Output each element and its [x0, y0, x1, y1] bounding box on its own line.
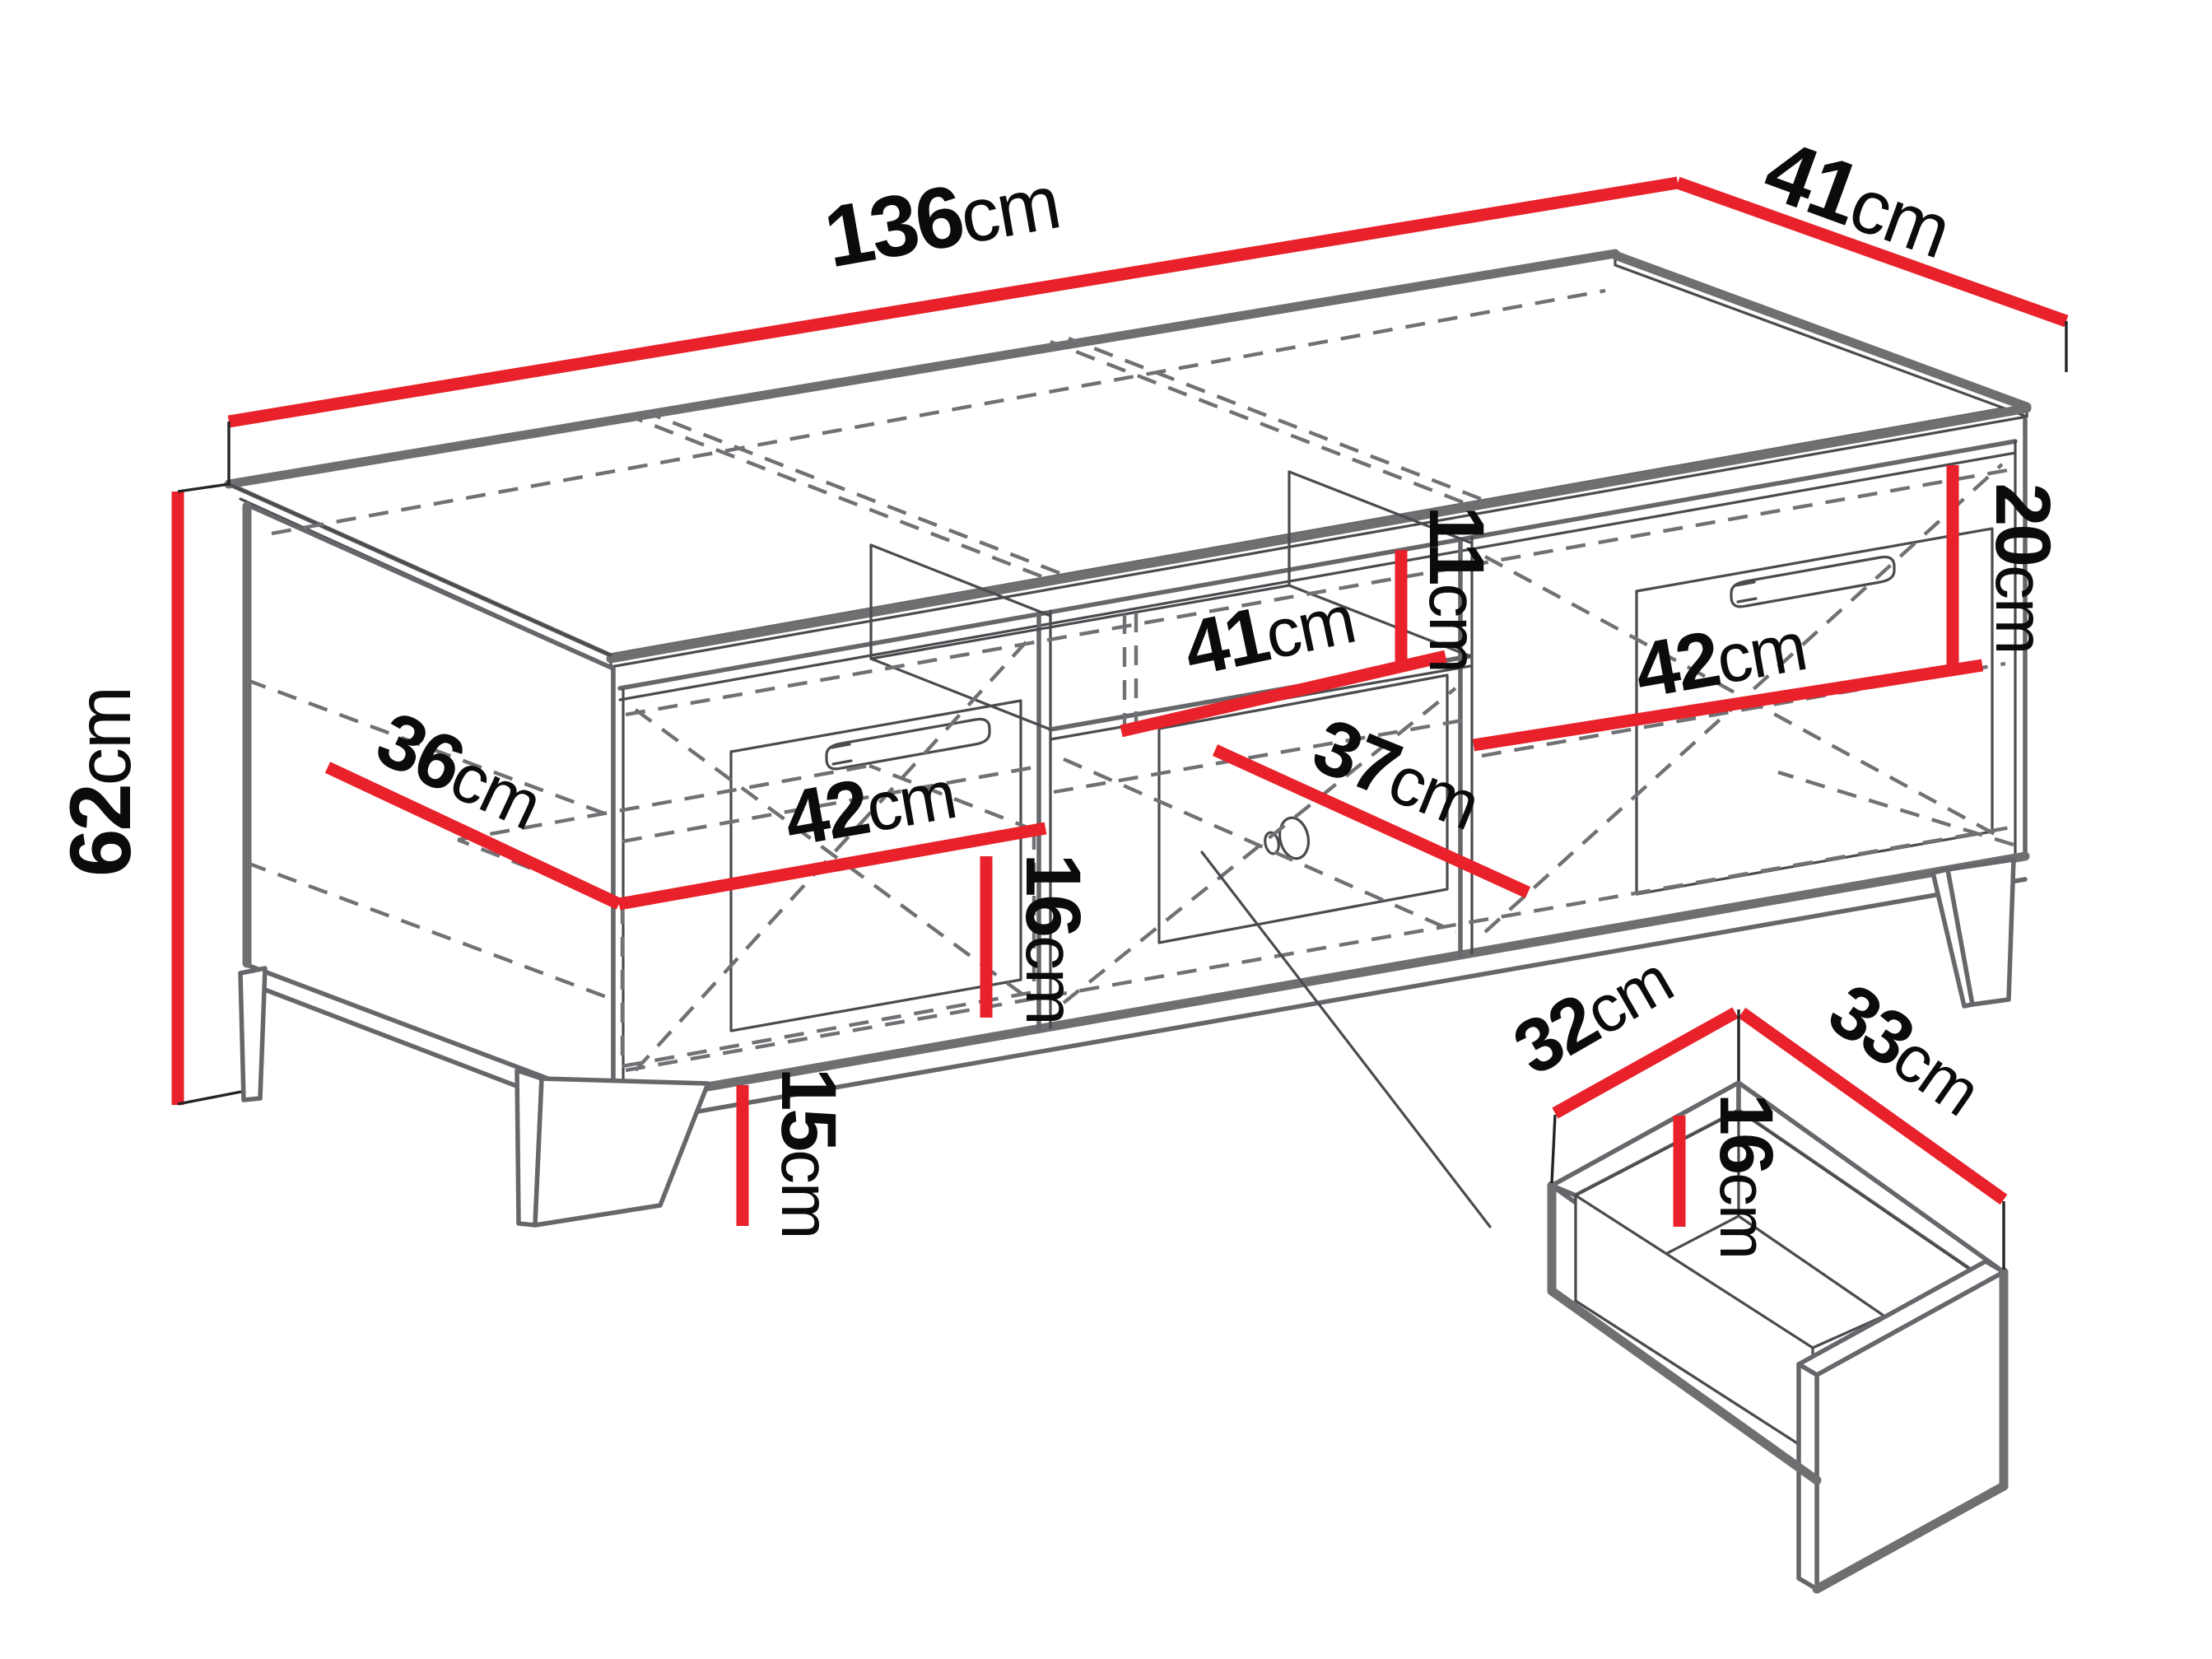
- leg-front-right: [1933, 860, 2014, 1006]
- cabinet-drawing: [229, 254, 2027, 1225]
- dim-label-top-width: 136cm: [817, 151, 1065, 287]
- dim-label-left-drawer-height: 16cm: [1009, 853, 1097, 1023]
- dim-label-height: 62cm: [53, 687, 149, 877]
- dim-label-box-height: 16cm: [1704, 1093, 1788, 1258]
- dim-label-leg-height: 15cm: [765, 1067, 852, 1237]
- dim-label-niche-height: 11cm: [1413, 506, 1500, 672]
- dim-label-right-door-height: 20cm: [1979, 482, 2066, 653]
- diagram-canvas: 136cm 41cm 62cm 36cm 42cm 16cm 41cm 11cm…: [0, 0, 2212, 1659]
- leg-back-left: [240, 968, 265, 1100]
- leg-front-left: [517, 1070, 708, 1225]
- furniture-dimension-diagram: 136cm 41cm 62cm 36cm 42cm 16cm 41cm 11cm…: [0, 0, 2212, 1659]
- dim-label-box-depth: 32cm: [1500, 936, 1684, 1091]
